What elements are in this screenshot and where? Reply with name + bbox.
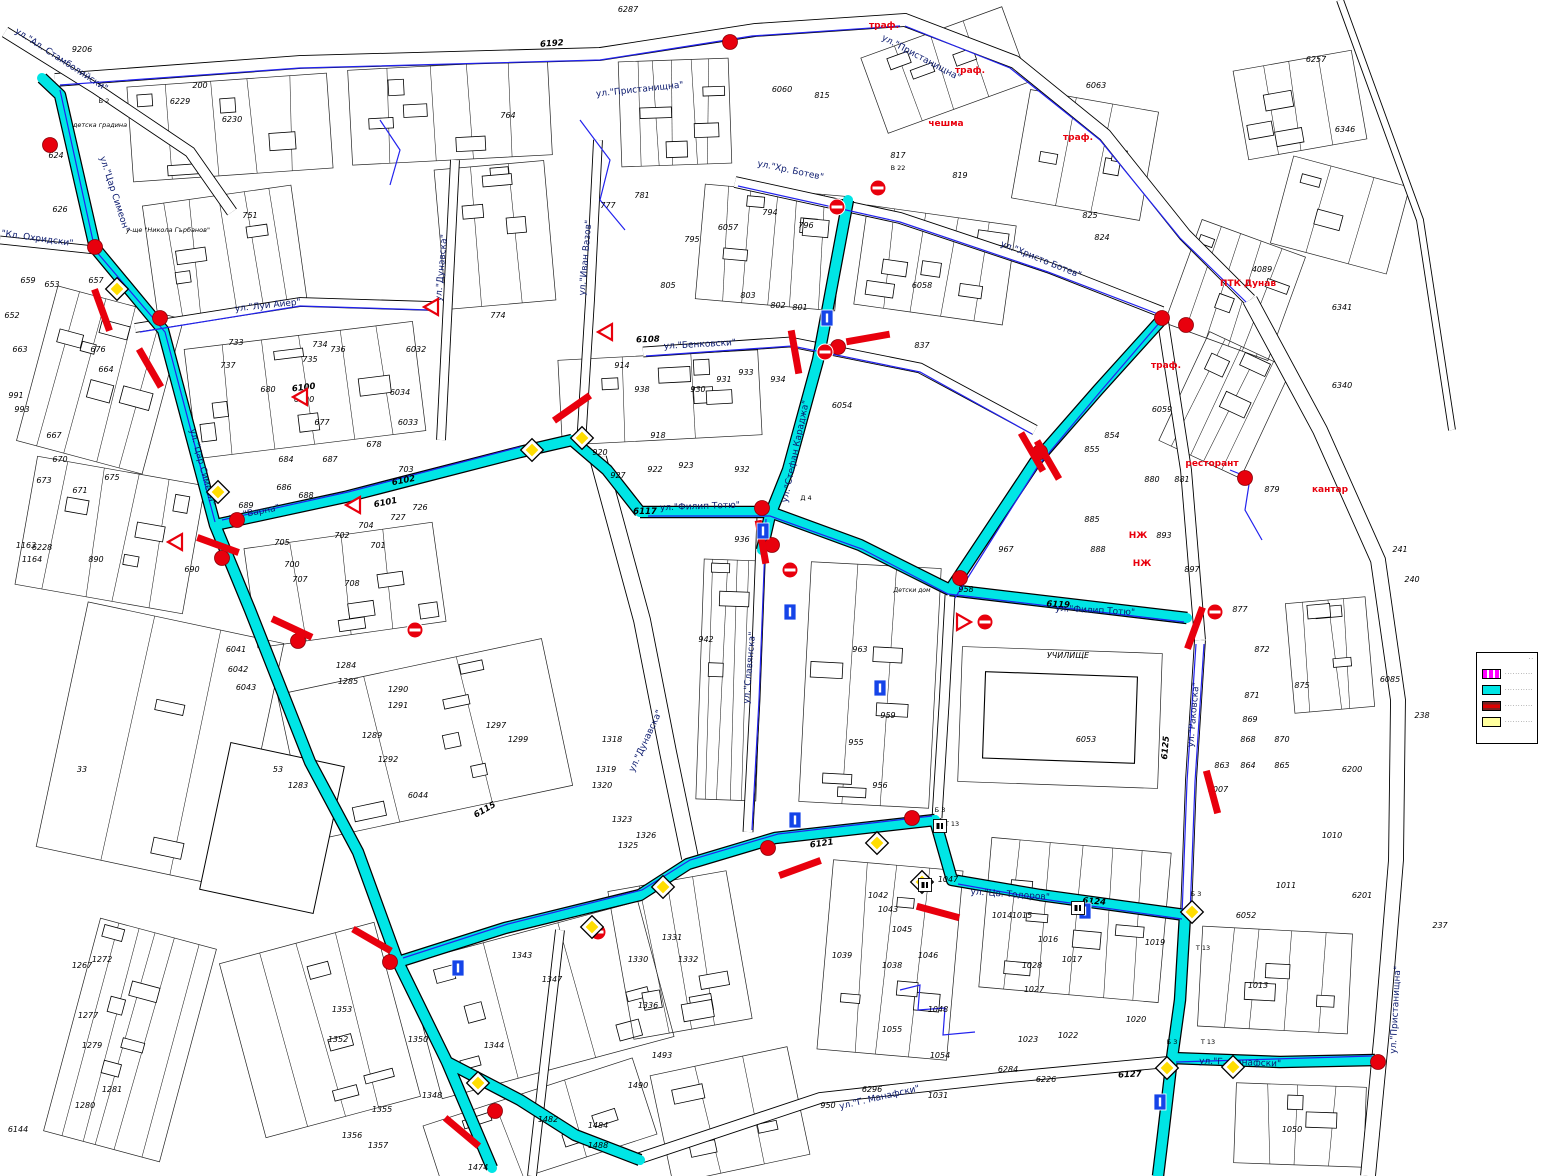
building — [358, 375, 391, 396]
parcel-number: 1357 — [368, 1141, 389, 1150]
building — [1204, 353, 1229, 377]
red-dot-shape — [905, 811, 920, 826]
red-dot-shape — [1179, 318, 1194, 333]
red-poi-label: чешма — [928, 119, 963, 129]
building — [173, 494, 190, 513]
parcel-number: 1350 — [408, 1035, 428, 1044]
red-dot-shape — [953, 571, 968, 586]
parcel-number: 6043 — [236, 683, 256, 692]
building — [137, 94, 153, 107]
parcel-number: 1326 — [636, 831, 656, 840]
building — [1247, 121, 1274, 139]
parcel-line — [430, 66, 436, 161]
parcel-block — [854, 205, 1016, 325]
map-legend: ·· ············ ············ ···········… — [1476, 652, 1538, 744]
street-casing — [1340, 0, 1452, 430]
building — [881, 259, 907, 277]
parcel-number: 942 — [698, 635, 713, 644]
parcel-number: 1272 — [92, 955, 112, 964]
blue-sign-glyph — [457, 964, 459, 973]
parcel-number: 53 — [273, 765, 283, 774]
no-entry-bar — [785, 569, 796, 572]
parcel-number: 626 — [52, 205, 67, 214]
building — [1265, 963, 1290, 978]
blue-sign-icon — [789, 812, 801, 828]
red-dot-shape — [1371, 1055, 1386, 1070]
sign-code-label: Д 4 — [800, 494, 811, 502]
block-outline — [979, 837, 1171, 1002]
building — [1215, 293, 1235, 312]
building — [377, 571, 404, 588]
parcel-number: 726 — [412, 503, 427, 512]
parcel-number: 727 — [390, 513, 406, 522]
parcel-number: 686 — [276, 483, 291, 492]
parcel-number: 918 — [650, 431, 665, 440]
parcel-block — [44, 918, 217, 1162]
sign-code-label: В 22 — [891, 164, 906, 172]
parcel-number: 688 — [298, 491, 313, 500]
building — [747, 196, 765, 208]
red-dot-icon — [1371, 1055, 1386, 1070]
building — [1263, 90, 1293, 111]
parcel-number: 824 — [1094, 233, 1109, 242]
parcel-number: 1482 — [538, 1115, 558, 1124]
building — [352, 801, 386, 822]
building — [338, 617, 365, 632]
parcel-line — [260, 953, 308, 1127]
white-sign-glyph2 — [941, 823, 943, 829]
building — [464, 1002, 485, 1024]
white-sign-icon — [919, 879, 932, 892]
parcel-number: 764 — [500, 111, 515, 120]
parcel-number: 667 — [46, 431, 62, 440]
building — [708, 663, 723, 677]
parcel-number: 1319 — [596, 765, 616, 774]
parcel-number: 871 — [1244, 691, 1259, 700]
blue-sign-glyph — [794, 816, 796, 825]
parcel-number: 9206 — [72, 45, 92, 54]
parcel-number: 872 — [1254, 645, 1269, 654]
parcel-number: 678 — [366, 440, 381, 449]
parcel-number: 6032 — [406, 345, 426, 354]
parcel-number: 6287 — [618, 5, 639, 14]
parcel-number: 6057 — [718, 223, 739, 232]
building — [1275, 127, 1304, 146]
white-sign-glyph — [937, 823, 940, 829]
building — [1039, 151, 1058, 164]
red-bar-icon — [788, 330, 803, 375]
no-entry-bar — [980, 621, 991, 624]
parcel-line — [101, 616, 155, 861]
parcel-number: 702 — [334, 531, 349, 540]
red-dot-shape — [1155, 311, 1170, 326]
parcel-number: 6200 — [1342, 765, 1362, 774]
parcel-number: 673 — [36, 476, 51, 485]
area-label: Детски дом — [893, 587, 931, 594]
parcel-line — [1225, 928, 1235, 1028]
red-dot-icon — [1179, 318, 1194, 333]
red-poi-label: траф. — [1063, 133, 1093, 143]
sign-code-label: Б 3 — [935, 806, 946, 814]
parcel-number: 652 — [4, 311, 19, 320]
parcel-number: 704 — [358, 521, 373, 530]
parcel-number: 1285 — [338, 677, 358, 686]
red-dot-icon — [153, 311, 168, 326]
block-outline — [1197, 926, 1352, 1034]
building — [616, 1019, 643, 1041]
parcel-number: 708 — [344, 579, 359, 588]
street-casing — [735, 182, 1162, 312]
parcel-block — [1270, 156, 1409, 274]
building — [921, 261, 942, 278]
building — [121, 1038, 145, 1053]
white-sign-glyph2 — [1079, 905, 1081, 911]
no-entry-bar — [873, 187, 884, 190]
parcel-line — [842, 564, 858, 804]
area-label: у-ще "Никола Гърбанов" — [125, 226, 210, 234]
building — [897, 897, 915, 908]
parcel-line — [286, 76, 297, 171]
map-canvas[interactable]: ул."Ал. Стамболийски"ул."Пристанищна"ул.… — [0, 0, 1541, 1176]
parcel-number: 6054 — [832, 401, 852, 410]
parcel-number: 1297 — [486, 721, 507, 730]
red-dot-icon — [1238, 471, 1253, 486]
parcel-number: 663 — [12, 345, 27, 354]
parcel-number: 870 — [1274, 735, 1289, 744]
street-casing — [640, 1062, 1168, 1158]
red-poi-label: ресторант — [1185, 459, 1239, 469]
utility-line — [738, 186, 1158, 314]
red-dot-shape — [488, 1104, 503, 1119]
parcel-number: 794 — [762, 208, 777, 217]
parcel-number: 1292 — [378, 755, 398, 764]
parcel-line — [247, 78, 257, 173]
no-entry-icon — [782, 562, 798, 578]
parcel-number: 1279 — [82, 1041, 102, 1050]
parcel-number: 1039 — [832, 951, 852, 960]
parcel-number: 1022 — [1058, 1031, 1078, 1040]
parcel-number: 1353 — [332, 1005, 352, 1014]
red-dot-shape — [383, 955, 398, 970]
building — [129, 981, 160, 1003]
white-sign-icon — [934, 820, 947, 833]
building — [456, 136, 486, 152]
parcel-number: 959 — [880, 711, 895, 720]
parcel-number: 774 — [490, 311, 505, 320]
parcel-number: 1043 — [878, 905, 898, 914]
parcel-number: 819 — [952, 171, 967, 180]
parcel-number: 6340 — [1332, 381, 1352, 390]
parcel-number: 888 — [1090, 545, 1105, 554]
parcel-line — [112, 473, 139, 602]
legend-item-main-route: ············ — [1482, 666, 1534, 682]
area-label: детска градина — [72, 121, 127, 129]
parcel-number: 751 — [242, 211, 257, 220]
parcel-number: 200 — [192, 81, 207, 90]
parcel-number: 869 — [1242, 715, 1257, 724]
parcel-number: 927 — [610, 471, 626, 480]
building — [666, 141, 688, 158]
red-poi-label: НЖ — [1129, 531, 1148, 541]
parcel-number: 933 — [738, 368, 753, 377]
utility-lines-layer — [60, 26, 1372, 1062]
street-name-label: ул."Пристанищна" — [596, 80, 684, 99]
parcel-number: 1164 — [22, 555, 42, 564]
street-name-label: ул."Хр. Ботев" — [756, 159, 824, 183]
parcel-line — [147, 479, 172, 607]
parcel-line — [1222, 361, 1274, 470]
red-dot-icon — [723, 35, 738, 50]
red-dot-shape — [723, 35, 738, 50]
red-bar-icon — [846, 331, 891, 346]
parcel-number: 897 — [1184, 565, 1200, 574]
parcel-line — [1249, 929, 1259, 1029]
map-viewport[interactable]: ул."Ал. Стамболийски"ул."Пристанищна"ул.… — [0, 0, 1541, 1176]
blue-sign-glyph — [879, 684, 881, 693]
parcel-number: 879 — [1264, 485, 1279, 494]
building — [681, 1000, 714, 1022]
parcel-number: 854 — [1104, 431, 1119, 440]
building — [1314, 209, 1343, 231]
parcel-number: 6052 — [1236, 911, 1256, 920]
parcel-number: 237 — [1432, 921, 1448, 930]
white-sign-icon — [1072, 902, 1085, 915]
building — [462, 204, 484, 219]
main-route — [950, 318, 1163, 590]
block-outline — [348, 60, 553, 165]
utility-line — [380, 120, 400, 185]
white-sign-plate — [1072, 902, 1085, 915]
blue-sign-icon — [452, 960, 464, 976]
parcel-number: 238 — [1414, 711, 1429, 720]
building — [102, 924, 125, 941]
parcel-number: 801 — [792, 303, 807, 312]
parcel-line — [1129, 851, 1146, 1001]
main-route — [935, 820, 1185, 915]
parcel-line — [142, 945, 199, 1158]
building — [1300, 174, 1321, 188]
parcel-number: 6085 — [1380, 675, 1400, 684]
parcel-number: 6034 — [390, 388, 410, 397]
building — [107, 996, 125, 1015]
parcel-number: 877 — [1232, 605, 1248, 614]
building — [307, 961, 331, 979]
parcel-number: 868 — [1240, 735, 1255, 744]
parcel-number: 1163 — [16, 541, 36, 550]
no-entry-bar — [1210, 611, 1221, 614]
red-dot-icon — [230, 513, 245, 528]
parcel-line — [704, 59, 713, 164]
no-entry-icon — [1207, 604, 1223, 620]
parcel-number: 1330 — [628, 955, 648, 964]
no-entry-icon — [407, 622, 423, 638]
parcel-number: 1490 — [628, 1081, 648, 1090]
building — [896, 981, 918, 997]
parcel-number: 1050 — [1282, 1125, 1302, 1134]
parcel-number: 677 — [314, 418, 330, 427]
parcel-number: 1014 — [992, 911, 1012, 920]
white-sign-glyph — [922, 882, 925, 888]
closure-bar — [916, 903, 960, 921]
parcel-number: 675 — [104, 473, 119, 482]
building — [1307, 603, 1331, 619]
parcel-line — [1100, 848, 1117, 998]
sign-code-label: Б 3 — [1191, 890, 1202, 898]
parcel-number: 817 — [890, 151, 906, 160]
parcel-number: 1047 — [938, 875, 959, 884]
parcel-line — [269, 188, 288, 307]
street-fill — [1250, 300, 1398, 1176]
street-fill — [532, 930, 560, 1176]
building — [1316, 995, 1334, 1007]
parcel-line — [261, 340, 275, 449]
give-way-icon — [168, 534, 182, 550]
parcel-number: 864 — [1240, 761, 1255, 770]
legend-item-red: ············ — [1482, 698, 1534, 714]
parcel-line — [507, 62, 513, 157]
parcel-number: 922 — [647, 465, 662, 474]
parcel-line — [741, 1056, 765, 1164]
parcel-number: 653 — [44, 280, 59, 289]
parcel-number: 1031 — [928, 1091, 948, 1100]
parcel-line — [211, 81, 219, 176]
building — [1115, 925, 1144, 938]
no-entry-icon — [870, 180, 886, 196]
building — [810, 661, 843, 678]
parcel-line — [908, 868, 929, 1058]
parcel-number: 240 — [1404, 575, 1419, 584]
no-entry-bar — [832, 206, 843, 209]
parcel-number: 815 — [814, 91, 829, 100]
building — [443, 694, 470, 709]
red-dot-icon — [755, 501, 770, 516]
parcel-number: 1023 — [1018, 1035, 1038, 1044]
parcel-number: 6284 — [998, 1065, 1018, 1074]
legend-item-cyan-route: ············ — [1482, 682, 1534, 698]
parcel-number: 659 — [20, 276, 35, 285]
parcel-number: 991 — [8, 391, 23, 400]
parcel-number: 1267 — [72, 961, 93, 970]
parcel-number: 923 — [678, 461, 693, 470]
parcel-line — [1265, 1084, 1273, 1164]
block-outline — [1011, 90, 1158, 221]
parcel-number: 890 — [88, 555, 103, 564]
parcel-number: 1020 — [1126, 1015, 1146, 1024]
parcel-number: 680 — [260, 385, 275, 394]
parcel-number: 837 — [914, 341, 930, 350]
red-dot-shape — [755, 501, 770, 516]
street-fill — [1340, 0, 1452, 430]
blue-sign-icon — [1154, 1094, 1166, 1110]
parcel-number: 6044 — [408, 791, 428, 800]
building — [1306, 1112, 1337, 1128]
parcel-number: 1331 — [662, 933, 682, 942]
white-sign-plate — [934, 820, 947, 833]
parcel-line — [1348, 177, 1374, 265]
utility-line — [580, 120, 625, 230]
parcel-line — [469, 167, 482, 307]
building — [332, 1085, 359, 1102]
parcel-number: 6059 — [1152, 405, 1172, 414]
parcel-line — [691, 59, 697, 164]
building — [694, 123, 719, 138]
block-outline — [799, 562, 941, 808]
parcel-number: 6341 — [1332, 303, 1352, 312]
parcel-number: 855 — [1084, 445, 1099, 454]
parcel-number: 885 — [1084, 515, 1099, 524]
priority-road-icon — [866, 832, 889, 855]
building — [506, 216, 526, 233]
red-dot-shape — [230, 513, 245, 528]
parcel-number: 684 — [278, 455, 293, 464]
parcel-number: 6042 — [228, 665, 248, 674]
red-poi-label: траф. — [1151, 361, 1181, 371]
area-label: УЧИЛИЩЕ — [1047, 651, 1090, 660]
parcel-number: 735 — [302, 355, 317, 364]
parcel-number: 33 — [77, 765, 87, 774]
parcel-block — [618, 58, 732, 167]
no-entry-bar — [820, 351, 831, 354]
red-dot-shape — [215, 551, 230, 566]
building — [200, 423, 217, 442]
no-entry-icon — [829, 199, 845, 215]
parcel-number: 690 — [184, 565, 199, 574]
parcel-number: 737 — [220, 361, 236, 370]
building — [482, 174, 512, 187]
parcel-number: 670 — [52, 455, 67, 464]
parcel-number: 825 — [1082, 211, 1097, 220]
parcel-number: 1046 — [918, 951, 938, 960]
parcel-number: 671 — [72, 486, 87, 495]
parcel-number: 6053 — [1076, 735, 1096, 744]
building — [1333, 657, 1352, 667]
parcel-number: 1488 — [588, 1141, 608, 1150]
blue-sign-icon — [784, 604, 796, 620]
give-way-icon — [957, 614, 971, 630]
street-axis-number: 6119 — [1046, 599, 1070, 610]
blue-sign-icon — [874, 680, 886, 696]
parcel-block — [958, 647, 1163, 789]
parcel-number: 1054 — [930, 1051, 950, 1060]
parcel-number: 1332 — [678, 955, 698, 964]
building — [699, 971, 730, 989]
building — [123, 554, 139, 567]
parcel-number: 950 — [820, 1101, 835, 1110]
red-dot-shape — [761, 841, 776, 856]
building — [246, 224, 268, 238]
parcel-number: 930 — [690, 385, 705, 394]
closure-bar — [136, 347, 164, 389]
parcel-line — [695, 1066, 721, 1174]
parcel-number: 938 — [634, 385, 649, 394]
parcel-number: 1283 — [288, 781, 308, 790]
give-way-icon — [598, 324, 612, 340]
parcel-number: 958 — [958, 585, 973, 594]
red-bar-icon — [916, 903, 960, 921]
blue-sign-glyph — [826, 314, 828, 323]
parcel-number: 880 — [1144, 475, 1159, 484]
parcel-block — [1233, 50, 1367, 159]
parcel-number: 1042 — [868, 891, 888, 900]
large-building — [983, 672, 1138, 764]
give-way-triangle — [168, 534, 182, 550]
parcel-number: 1493 — [652, 1051, 672, 1060]
labels-layer: ул."Ал. Стамболийски"ул."Пристанищна"ул.… — [0, 5, 1449, 1172]
building — [65, 497, 89, 515]
parcel-number: 993 — [14, 405, 29, 414]
parcel-number: 6257 — [1306, 55, 1327, 64]
parcel-number: 1347 — [542, 975, 563, 984]
